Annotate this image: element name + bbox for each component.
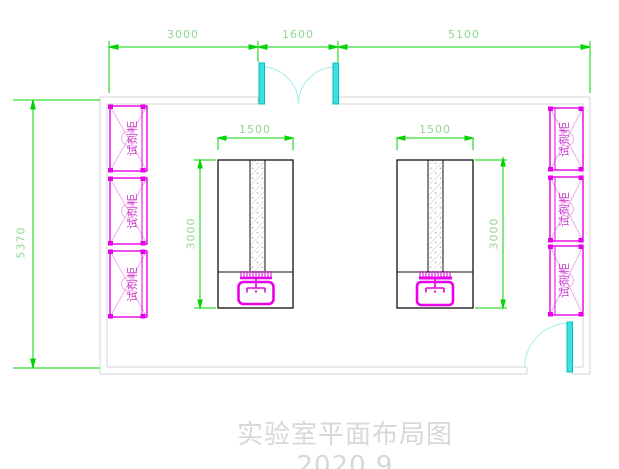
top-dimension [109, 41, 590, 93]
drawing-title: 实验室平面布局图2020.9 [200, 414, 490, 469]
floor-plan-drawing [0, 0, 619, 469]
door-leaf-left [259, 63, 265, 104]
door-swing-arc-right [299, 67, 336, 104]
dimension-label-bench-right-depth: 3000 [488, 199, 501, 269]
dimension-label-bench-left-width: 1500 [220, 123, 290, 136]
cabinet-label: 试剂柜 [559, 187, 571, 231]
dimension-label-bench-left-depth: 3000 [185, 199, 198, 269]
dimension-label-bench-right-width: 1500 [400, 123, 470, 136]
floor-plan-canvas: 3000 1600 5100 5370 1500 1500 3000 3000 … [0, 0, 619, 469]
bench-left-width-dimension [218, 136, 293, 150]
door-leaf-right [333, 63, 339, 104]
entry-double-door [259, 63, 339, 104]
door-swing-arc [525, 323, 570, 368]
dimension-label-room-height: 5370 [15, 223, 28, 263]
cabinet-label: 试剂柜 [127, 262, 139, 306]
cabinet-label: 试剂柜 [559, 258, 571, 302]
cabinet-label: 试剂柜 [127, 116, 139, 160]
door-leaf [567, 322, 573, 372]
bench-right-width-dimension [397, 136, 473, 150]
bench-right-hatch-strip [428, 160, 443, 272]
sink-left [239, 271, 274, 304]
cabinet-label: 试剂柜 [127, 189, 139, 233]
dimension-label-top-3: 5100 [429, 28, 499, 41]
dimension-label-top-1: 3000 [148, 28, 218, 41]
dimension-label-top-2: 1600 [263, 28, 333, 41]
side-door [525, 322, 573, 372]
room-walls [100, 97, 590, 374]
bench-left-hatch-strip [250, 160, 265, 272]
door-swing-arc-left [262, 67, 299, 104]
cabinet-label: 试剂柜 [559, 117, 571, 161]
sink-right [417, 271, 453, 305]
